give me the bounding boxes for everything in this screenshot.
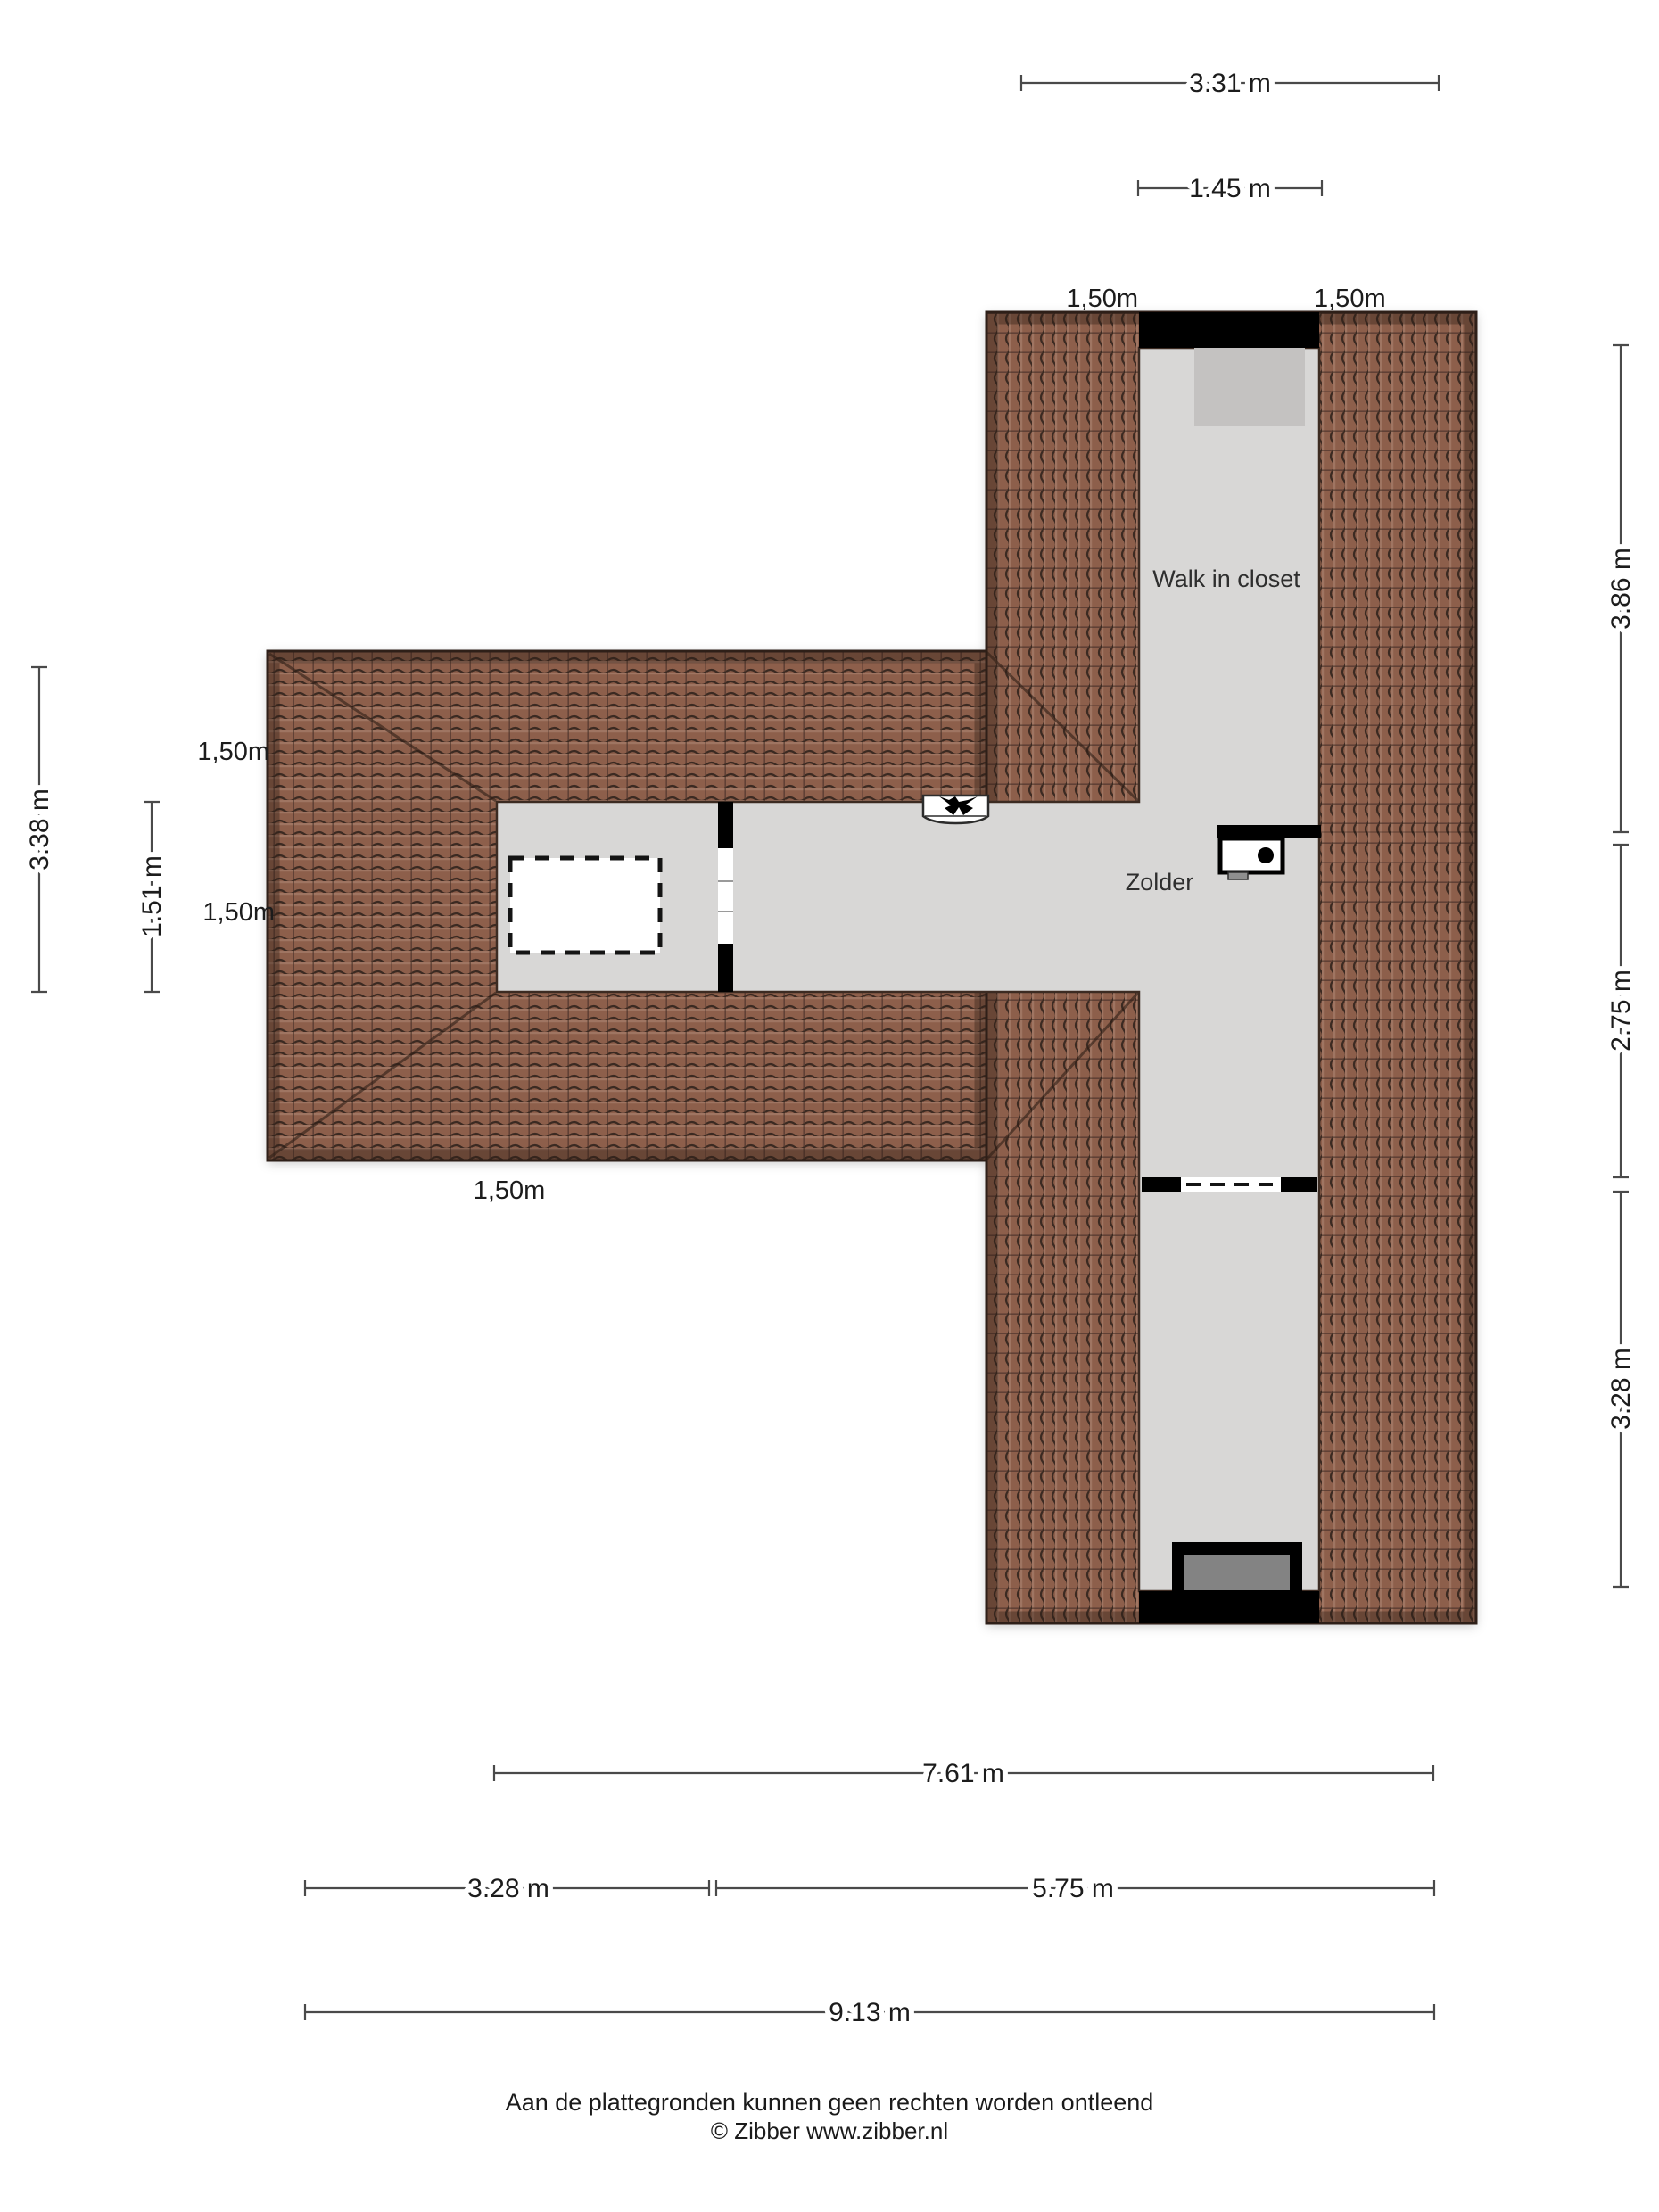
room-label-zolder: Zolder: [1126, 869, 1194, 896]
sink-icon: [923, 796, 988, 823]
boiler-dot: [1258, 847, 1274, 863]
mark-top-left: 1,50m: [1066, 285, 1138, 313]
floorplan-page: Walk in closet Zolder 1,50m 1,50m 1,50m …: [0, 0, 1659, 2212]
dim-left-outer-label: 3.38 m: [25, 788, 54, 871]
wall-door-jamb-bottom: [718, 944, 733, 992]
footer-copyright: © Zibber www.zibber.nl: [711, 2117, 948, 2144]
closet-block: [1194, 348, 1305, 426]
mark-top-right: 1,50m: [1314, 285, 1386, 313]
dim-right-bottom-label: 3.28 m: [1606, 1348, 1636, 1430]
dim-right-mid-label: 2.75 m: [1606, 970, 1636, 1052]
dormer-glass: [1184, 1555, 1290, 1590]
boiler-unit: [1220, 838, 1283, 879]
dim-top-overall-label: 3.31 m: [1189, 69, 1271, 98]
dim-bottom-left-label: 3.28 m: [467, 1874, 549, 1903]
door-leaf-area: [718, 848, 733, 944]
dim-bottom-overall-label: 9.13 m: [829, 1998, 911, 2027]
footer-disclaimer: Aan de plattegronden kunnen geen rechten…: [506, 2089, 1154, 2116]
mark-left-upper: 1,50m: [197, 738, 269, 766]
window-middle-wall: [1181, 1177, 1281, 1192]
dim-top-closet-label: 1.45 m: [1189, 174, 1271, 203]
wall-bottom: [1139, 1591, 1319, 1623]
dim-bottom-span-label: 7.61 m: [922, 1759, 1004, 1788]
mark-bottom-center: 1,50m: [474, 1176, 546, 1205]
dim-right-top-label: 3.86 m: [1606, 548, 1636, 630]
boiler-tab: [1228, 872, 1248, 879]
floorplan-svg: Walk in closet Zolder 1,50m 1,50m 1,50m …: [0, 0, 1659, 2212]
mark-left-lower: 1,50m: [202, 898, 275, 927]
room-label-walk-in-closet: Walk in closet: [1152, 565, 1300, 592]
door-opening: [718, 848, 733, 944]
wall-door-jamb-top: [718, 802, 733, 848]
skylight-dashed-rect: [510, 858, 660, 953]
dim-left-inner-label: 1.51 m: [137, 855, 167, 937]
wall-top: [1139, 312, 1319, 348]
dormer-bottom: [1172, 1542, 1302, 1593]
dim-bottom-right-label: 5.75 m: [1032, 1874, 1114, 1903]
